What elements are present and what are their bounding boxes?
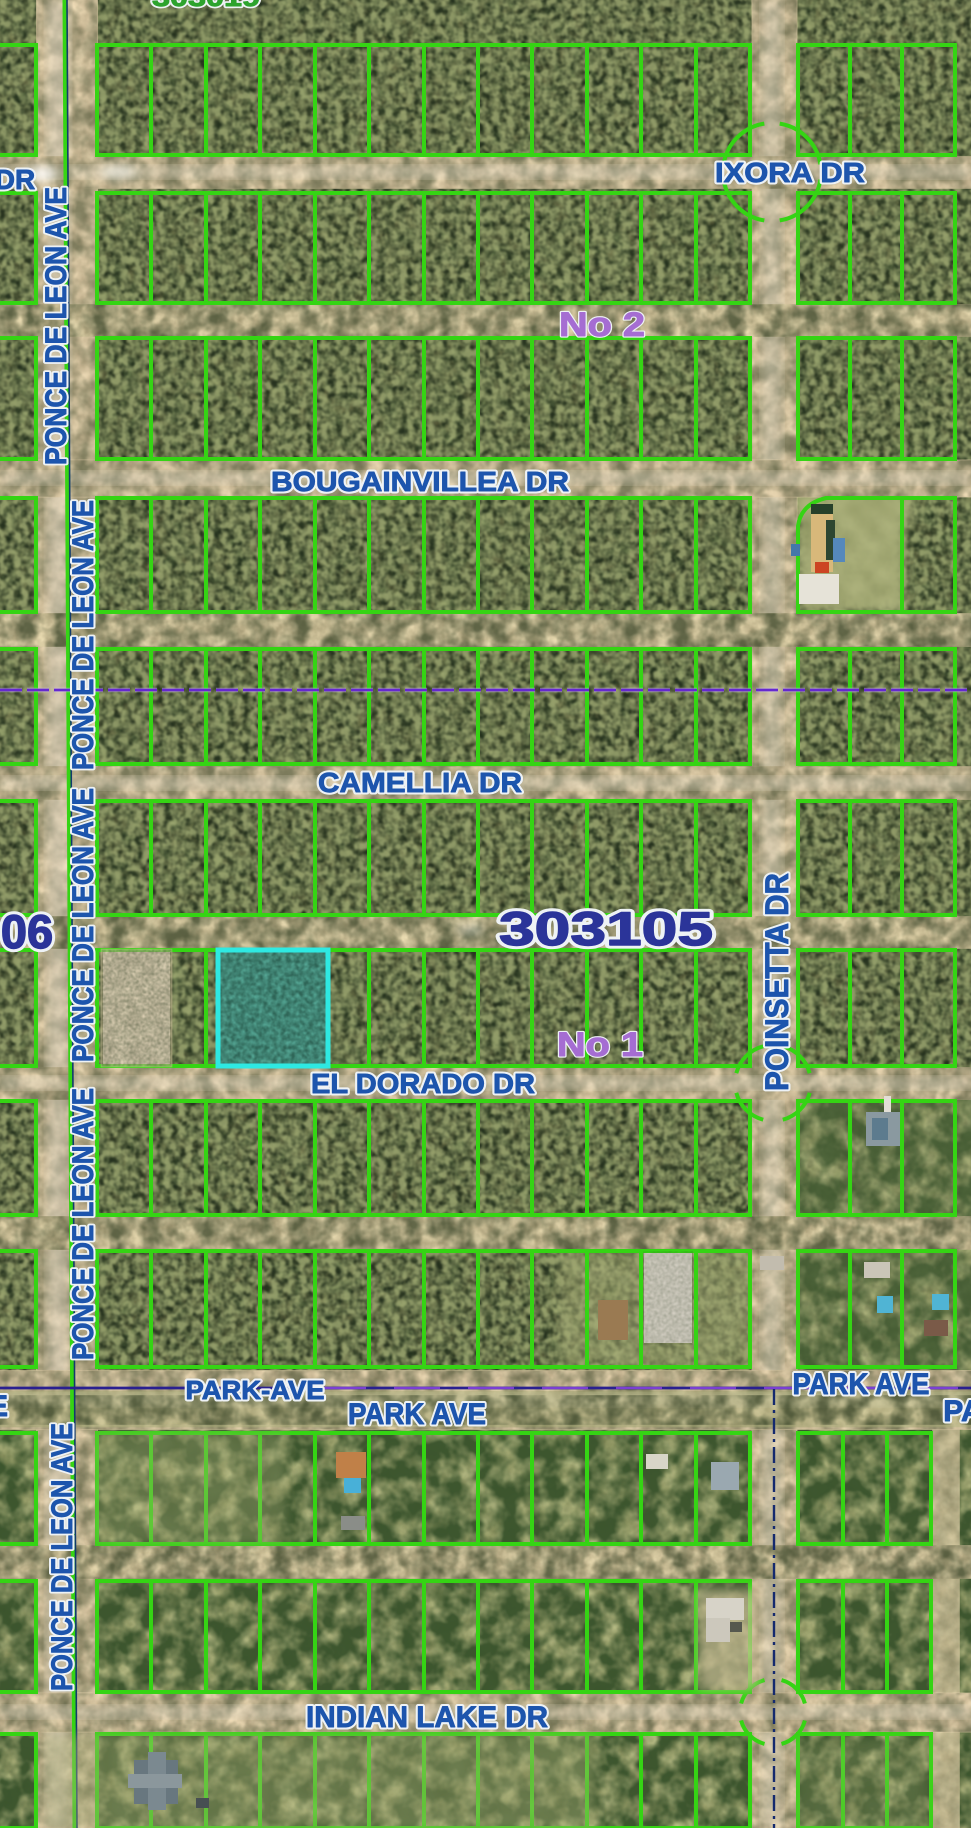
svg-text:303019: 303019 xyxy=(152,0,260,12)
svg-text:BOUGAINVILLEA DR: BOUGAINVILLEA DR xyxy=(271,466,569,497)
svg-text:PONCE DE LEON AVE: PONCE DE LEON AVE xyxy=(46,1423,79,1691)
svg-text:EL DORADO DR: EL DORADO DR xyxy=(311,1068,535,1099)
svg-text:303105: 303105 xyxy=(499,902,713,955)
svg-text:PARK AVE: PARK AVE xyxy=(793,1368,930,1401)
svg-text:PONCE DE LEON AVE: PONCE DE LEON AVE xyxy=(67,1088,100,1360)
svg-text:IXORA DR: IXORA DR xyxy=(715,157,865,188)
svg-text:PONCE DE LEON AVE: PONCE DE LEON AVE xyxy=(67,500,100,770)
svg-text:CAMELLIA DR: CAMELLIA DR xyxy=(318,767,522,798)
svg-text:E: E xyxy=(0,1390,8,1423)
svg-text:PONCE DE LEON AVE: PONCE DE LEON AVE xyxy=(67,788,100,1062)
svg-text:PARK-AVE: PARK-AVE xyxy=(186,1375,325,1405)
svg-text:06: 06 xyxy=(1,905,53,958)
svg-text:POINSETTA DR: POINSETTA DR xyxy=(759,873,795,1091)
svg-text:No 1: No 1 xyxy=(557,1026,643,1064)
svg-text:PONCE DE LEON AVE: PONCE DE LEON AVE xyxy=(40,187,73,465)
svg-text:No 2: No 2 xyxy=(559,306,645,344)
svg-text:INDIAN LAKE DR: INDIAN LAKE DR xyxy=(306,1701,548,1734)
svg-text:DR: DR xyxy=(0,164,35,195)
svg-text:PA: PA xyxy=(943,1395,971,1428)
svg-text:PARK AVE: PARK AVE xyxy=(348,1398,486,1431)
